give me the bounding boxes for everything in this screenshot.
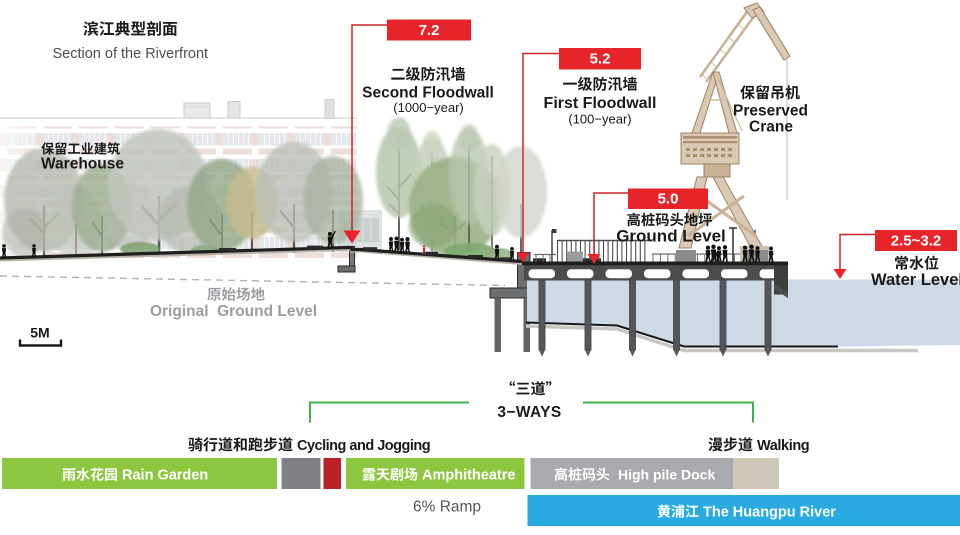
svg-text:Ground Level: Ground Level (616, 227, 726, 246)
svg-text:High pile Dock: High pile Dock (618, 467, 715, 483)
svg-text:Amphitheatre: Amphitheatre (422, 468, 515, 484)
svg-text:2.5~3.2: 2.5~3.2 (891, 233, 941, 250)
svg-text:First Floodwall: First Floodwall (544, 95, 657, 112)
svg-text:Walking: Walking (757, 438, 809, 454)
svg-text:Warehouse: Warehouse (41, 156, 124, 173)
svg-text:6% Ramp: 6% Ramp (413, 499, 481, 516)
svg-text:(100−year): (100−year) (568, 112, 631, 127)
svg-text:(1000−year): (1000−year) (393, 100, 463, 115)
svg-text:Cycling and Jogging: Cycling and Jogging (297, 438, 430, 454)
svg-text:Crane: Crane (749, 119, 793, 136)
svg-text:3−WAYS: 3−WAYS (497, 404, 561, 421)
svg-text:Second Floodwall: Second Floodwall (362, 85, 494, 102)
svg-text:Original Ground Level: Original Ground Level (150, 303, 317, 320)
svg-text:The Huangpu River: The Huangpu River (703, 505, 836, 521)
svg-text:5.0: 5.0 (658, 191, 679, 208)
svg-text:5.2: 5.2 (590, 51, 611, 68)
svg-text:Water Level: Water Level (871, 271, 960, 289)
svg-text:7.2: 7.2 (419, 22, 440, 39)
svg-text:Section of the Riverfront: Section of the Riverfront (53, 46, 209, 62)
svg-text:Preserved: Preserved (733, 103, 808, 120)
svg-text:Rain Garden: Rain Garden (122, 468, 208, 484)
svg-text:5M: 5M (30, 325, 49, 341)
